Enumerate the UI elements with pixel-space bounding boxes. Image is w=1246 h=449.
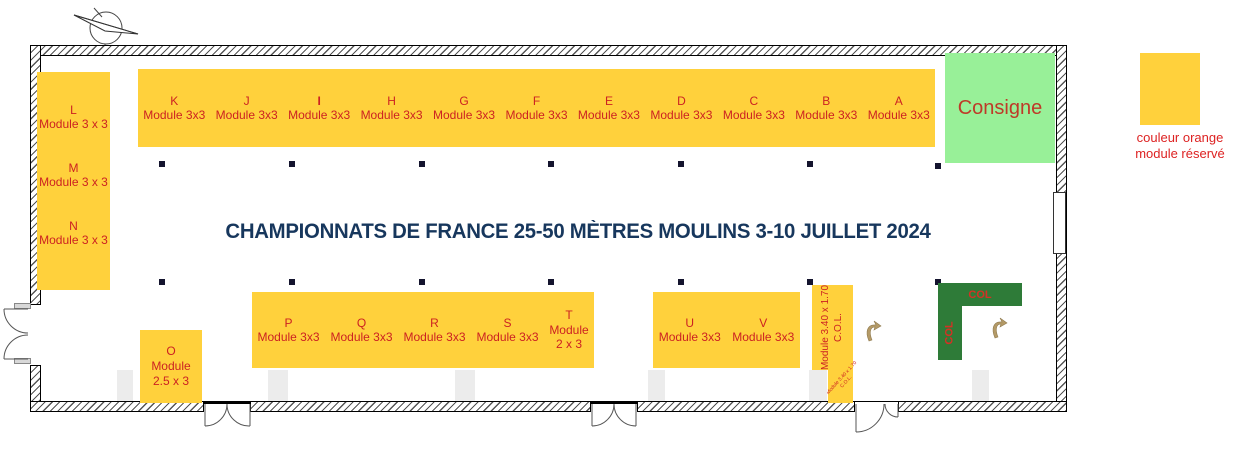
gray-pillar bbox=[809, 370, 827, 401]
pillar bbox=[159, 279, 165, 285]
module-size: Module 3 x 3 bbox=[37, 175, 110, 189]
bottom-door-1 bbox=[204, 404, 251, 434]
plan-title: CHAMPIONNATS DE FRANCE 25-50 MÈTRES MOUL… bbox=[185, 220, 971, 244]
gray-pillar bbox=[972, 370, 989, 401]
module-size: Module 3x3 bbox=[428, 108, 500, 122]
module-letter: T bbox=[544, 308, 594, 322]
bottom-door-3 bbox=[855, 404, 899, 438]
module-band-UV: U Module 3x3 V Module 3x3 bbox=[653, 292, 800, 368]
module-letter: D bbox=[645, 94, 717, 108]
pillar bbox=[548, 279, 554, 285]
module-size: 2 x 3 bbox=[544, 337, 594, 351]
module-size: Module 3x3 bbox=[573, 108, 645, 122]
module-P: P Module 3x3 bbox=[252, 316, 325, 345]
module-letter: H bbox=[355, 94, 427, 108]
door3-lintel bbox=[855, 401, 898, 402]
module-T: T Module 2 x 3 bbox=[544, 308, 594, 351]
module-letter: N bbox=[37, 219, 110, 233]
left-door-leaves bbox=[4, 306, 31, 362]
module-size: Module 3x3 bbox=[325, 330, 398, 344]
module-size: Module 3 x 3 bbox=[37, 117, 110, 131]
module-size: Module 3 x 3 bbox=[37, 233, 110, 247]
pillar bbox=[548, 161, 554, 167]
module-column-LMN: L Module 3 x 3 M Module 3 x 3 N Module 3… bbox=[37, 72, 110, 290]
module-size: Module 3x3 bbox=[718, 108, 790, 122]
module-N: N Module 3 x 3 bbox=[37, 204, 110, 262]
module-A: A Module 3x3 bbox=[863, 94, 935, 123]
module-letter: K bbox=[138, 94, 210, 108]
module-letter: R bbox=[398, 316, 471, 330]
module-F: F Module 3x3 bbox=[500, 94, 572, 123]
consigne-area: Consigne bbox=[945, 53, 1055, 163]
floor-plan: L Module 3 x 3 M Module 3 x 3 N Module 3… bbox=[0, 0, 1246, 449]
module-band-PQRST: P Module 3x3 Q Module 3x3 R Module 3x3 S… bbox=[252, 292, 594, 368]
module-size: Module 3x3 bbox=[355, 108, 427, 122]
module-letter: Q bbox=[325, 316, 398, 330]
pillar bbox=[935, 163, 941, 169]
module-letter: U bbox=[653, 316, 727, 330]
gray-pillar bbox=[117, 370, 133, 401]
wall-bottom-seg2 bbox=[250, 401, 591, 412]
module-size: Module 3x3 bbox=[398, 330, 471, 344]
module-size: Module bbox=[544, 323, 594, 337]
module-letter: A bbox=[863, 94, 935, 108]
module-letter: V bbox=[727, 316, 801, 330]
legend-line: couleur orange bbox=[1118, 130, 1242, 146]
module-letter: P bbox=[252, 316, 325, 330]
bottom-door-2 bbox=[591, 404, 637, 434]
module-letter: B bbox=[790, 94, 862, 108]
legend-color-swatch bbox=[1140, 53, 1200, 125]
module-J: J Module 3x3 bbox=[210, 94, 282, 123]
gray-pillar bbox=[648, 370, 665, 401]
module-Q: Q Module 3x3 bbox=[325, 316, 398, 345]
module-size: Module 3.40 x 1.70 bbox=[820, 285, 833, 370]
pillar bbox=[678, 279, 684, 285]
module-S: S Module 3x3 bbox=[471, 316, 544, 345]
module-size: Module 3x3 bbox=[727, 330, 801, 344]
module-L: L Module 3 x 3 bbox=[37, 88, 110, 146]
module-size: Module 3x3 bbox=[790, 108, 862, 122]
right-wall-door bbox=[1053, 192, 1066, 254]
module-M: M Module 3 x 3 bbox=[37, 146, 110, 204]
module-size: Module 3x3 bbox=[863, 108, 935, 122]
col-label: COL bbox=[944, 321, 956, 344]
pillar bbox=[678, 161, 684, 167]
gray-pillar bbox=[268, 370, 288, 401]
consigne-label: Consigne bbox=[958, 97, 1043, 120]
wall-top bbox=[30, 45, 1067, 56]
module-letter: C bbox=[718, 94, 790, 108]
col-area-horizontal: COL bbox=[938, 283, 1022, 306]
module-B: B Module 3x3 bbox=[790, 94, 862, 123]
wall-bottom-seg3 bbox=[637, 401, 855, 412]
module-K: K Module 3x3 bbox=[138, 94, 210, 123]
module-C: C Module 3x3 bbox=[718, 94, 790, 123]
module-I: I Module 3x3 bbox=[283, 94, 355, 123]
module-letter: J bbox=[210, 94, 282, 108]
module-band-top: K Module 3x3 J Module 3x3 I Module 3x3 H… bbox=[138, 69, 935, 147]
module-O: O Module 2.5 x 3 bbox=[140, 330, 202, 403]
module-size: Module 3x3 bbox=[210, 108, 282, 122]
module-letter: F bbox=[500, 94, 572, 108]
module-V: V Module 3x3 bbox=[727, 316, 801, 345]
gray-pillar bbox=[455, 370, 475, 401]
legend-caption: couleur orange module réservé bbox=[1118, 130, 1242, 161]
module-letter: L bbox=[37, 103, 110, 117]
pillar bbox=[159, 161, 165, 167]
module-col-strip-text: Module 3.40 x 1.70 C.O.L. bbox=[812, 285, 853, 370]
col-area-vertical: COL bbox=[938, 306, 962, 360]
module-size: Module 3x3 bbox=[252, 330, 325, 344]
pillar bbox=[419, 161, 425, 167]
module-size: Module 3x3 bbox=[283, 108, 355, 122]
module-U: U Module 3x3 bbox=[653, 316, 727, 345]
module-H: H Module 3x3 bbox=[355, 94, 427, 123]
module-size: Module bbox=[140, 359, 202, 374]
module-letter: O bbox=[140, 344, 202, 359]
module-size: Module 3x3 bbox=[500, 108, 572, 122]
module-size: Module 3x3 bbox=[645, 108, 717, 122]
module-letter: E bbox=[573, 94, 645, 108]
module-size: C.O.L. bbox=[833, 285, 846, 370]
compass-icon bbox=[72, 2, 144, 50]
module-size: Module 3x3 bbox=[138, 108, 210, 122]
legend-line: module réservé bbox=[1118, 146, 1242, 162]
direction-arrow-icon bbox=[990, 317, 1008, 339]
module-G: G Module 3x3 bbox=[428, 94, 500, 123]
pillar bbox=[807, 161, 813, 167]
module-size: Module 3x3 bbox=[653, 330, 727, 344]
pillar bbox=[289, 279, 295, 285]
module-D: D Module 3x3 bbox=[645, 94, 717, 123]
module-size: Module 3x3 bbox=[471, 330, 544, 344]
module-letter: S bbox=[471, 316, 544, 330]
direction-arrow-icon bbox=[864, 320, 882, 342]
module-E: E Module 3x3 bbox=[573, 94, 645, 123]
module-letter: M bbox=[37, 161, 110, 175]
pillar bbox=[419, 279, 425, 285]
module-letter: G bbox=[428, 94, 500, 108]
col-label: COL bbox=[968, 289, 991, 301]
module-R: R Module 3x3 bbox=[398, 316, 471, 345]
pillar bbox=[289, 161, 295, 167]
wall-bottom-seg4 bbox=[898, 401, 1067, 412]
module-letter: I bbox=[283, 94, 355, 108]
module-size: 2.5 x 3 bbox=[140, 374, 202, 389]
